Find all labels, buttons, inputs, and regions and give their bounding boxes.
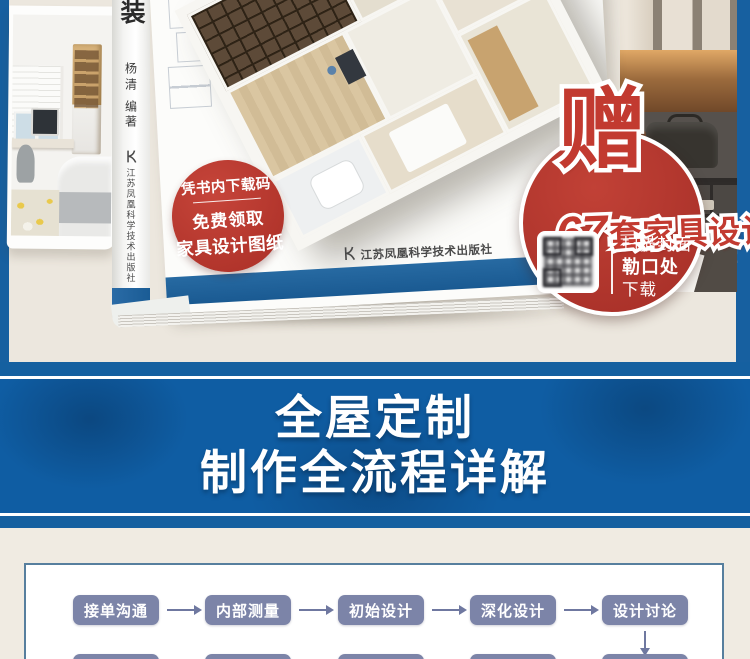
spine-publisher: 江苏凤凰科学技术出版社: [125, 168, 138, 284]
qr-corner: [543, 268, 562, 287]
flow-step-box-row2: [470, 654, 556, 659]
flow-step-box-row2: [205, 654, 291, 659]
gift-character-fill: 赠: [558, 86, 646, 174]
ribbon-line2: 免费领取: [191, 203, 265, 233]
bed-blanket: [57, 192, 111, 224]
scan-line3: 下载: [622, 280, 692, 301]
flow-step-box: 深化设计: [470, 595, 556, 625]
arrow-right-icon: [564, 609, 592, 611]
flow-step-box-row2: [602, 654, 688, 659]
rug: [11, 189, 59, 236]
flow-step-box: 内部测量: [205, 595, 291, 625]
arrow-right-icon: [432, 609, 460, 611]
arrow-right-icon: [167, 609, 195, 611]
promo-page: 00 2: [0, 0, 750, 659]
flow-step-box: 初始设计: [338, 595, 424, 625]
bedroom-photo-card: [7, 5, 118, 249]
publisher-logo-icon: [342, 246, 356, 264]
banner-top-strip: [0, 362, 750, 376]
scan-caption-divider: [611, 238, 613, 294]
flow-step-box: 接单沟通: [73, 595, 159, 625]
banner-line1: 全屋定制: [275, 391, 475, 446]
flow-step-box: 设计讨论: [602, 595, 688, 625]
spine-author: 杨清: [123, 62, 140, 94]
scan-line2: 勒口处: [622, 256, 692, 279]
top-photo-section: 00 2: [0, 0, 750, 362]
ribbon-divider: [193, 197, 261, 203]
scan-line1: 扫描封面: [622, 235, 692, 256]
ribbon-line1: 凭书内下载码: [180, 171, 271, 198]
chair: [16, 145, 34, 183]
cover-publisher-name: 江苏凤凰科学技术出版社: [360, 241, 493, 263]
spine-author-role: 编著: [123, 100, 140, 130]
spine-title: 软装: [113, 0, 149, 30]
wardrobe-cubbies: [74, 50, 99, 108]
bedroom-photo: [11, 14, 113, 236]
arrow-down-icon: [644, 631, 646, 649]
flowchart-section: 接单沟通 内部测量 初始设计 深化设计 设计讨论: [0, 528, 750, 659]
flow-step-box-row2: [73, 654, 159, 659]
qr-code: [537, 231, 599, 293]
publisher-logo-icon: [125, 150, 137, 168]
gift-character: 赠 赠: [558, 86, 646, 174]
top-shelf-boxes: [620, 0, 737, 52]
qr-corner: [543, 237, 562, 256]
qr-corner: [574, 237, 593, 256]
scan-caption: 扫描封面 勒口处 下载: [622, 235, 692, 301]
monitor: [31, 107, 59, 136]
book-spine: 软装 杨清 编著 江苏凤凰科学技术出版社: [112, 0, 150, 320]
headline-banner: 全屋定制 制作全流程详解: [0, 379, 750, 513]
flow-step-box-row2: [338, 654, 424, 659]
arrow-right-icon: [299, 609, 327, 611]
right-border-strip: [736, 0, 750, 362]
banner-bottom-strip: [0, 516, 750, 528]
banner-line2: 制作全流程详解: [200, 446, 550, 501]
flowchart-card: 接单沟通 内部测量 初始设计 深化设计 设计讨论: [24, 563, 724, 659]
